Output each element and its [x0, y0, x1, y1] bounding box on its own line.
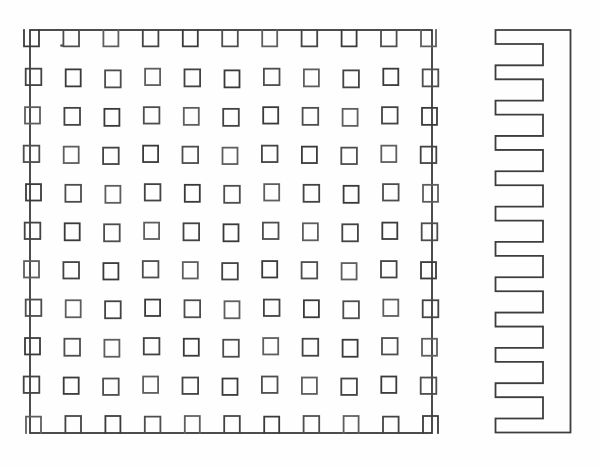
pin-outline — [383, 69, 398, 85]
pin-outline — [105, 186, 120, 203]
pin-outline — [144, 223, 159, 239]
pin-outline — [422, 223, 438, 240]
pin-outline — [304, 416, 320, 433]
pin-outline — [263, 338, 278, 354]
plan-outer-square — [30, 30, 432, 433]
pin-outline — [263, 223, 279, 239]
pin-outline — [423, 185, 438, 202]
pin-outline — [103, 30, 118, 46]
plan-view — [24, 30, 439, 433]
heatsink-technical-drawing — [0, 0, 600, 466]
pin-outline — [105, 416, 120, 433]
pin-outline — [184, 108, 199, 125]
pin-outline — [183, 378, 199, 394]
pin-outline — [222, 263, 238, 279]
pin-outline — [225, 301, 240, 318]
pin-outline — [223, 109, 239, 126]
pin-outline — [341, 148, 357, 164]
pin-outline — [341, 379, 357, 395]
pin-outline — [342, 263, 357, 279]
pin-outline — [302, 147, 317, 163]
pin-outline — [143, 261, 159, 277]
pin-outline — [105, 70, 121, 87]
pin-outline — [104, 224, 120, 241]
pin-outline — [381, 377, 396, 393]
pin-outline — [262, 377, 278, 393]
pin-outline — [184, 223, 200, 240]
pin-outline — [63, 30, 79, 46]
pin-outline — [303, 339, 319, 356]
pin-outline — [25, 107, 40, 123]
pin-outline — [66, 69, 81, 86]
pin-outline — [422, 339, 437, 356]
pin-outline — [26, 69, 42, 85]
pin-outline — [381, 30, 397, 46]
pin-outline — [103, 379, 119, 395]
pin-outline — [183, 147, 199, 163]
pin-outline — [342, 30, 357, 46]
pin-outline — [222, 30, 238, 46]
pin-outline — [383, 300, 398, 316]
pin-outline — [224, 416, 240, 433]
pin-outline — [64, 339, 80, 356]
pin-outline — [64, 378, 79, 394]
pin-outline — [423, 300, 439, 317]
pin-outline — [183, 262, 198, 278]
pin-outline — [262, 261, 277, 277]
pin-outline — [66, 300, 81, 317]
pin-outline — [26, 300, 42, 316]
pin-outline — [25, 338, 40, 354]
pin-outline — [383, 184, 399, 200]
pin-outline — [26, 184, 41, 200]
pin-outline — [381, 261, 397, 277]
pin-outline — [421, 30, 436, 46]
pin-outline — [185, 69, 201, 86]
pin-outline — [65, 416, 81, 433]
pin-outline — [25, 223, 41, 239]
pin-outline — [143, 377, 158, 393]
pin-outline — [145, 184, 161, 200]
pin-outline — [421, 147, 437, 163]
side-view — [496, 30, 571, 433]
pin-outline — [144, 338, 160, 354]
pin-outline — [224, 186, 240, 203]
pin-outline — [143, 146, 158, 162]
pin-outline — [65, 185, 81, 202]
pin-outline — [64, 108, 80, 125]
pin-outline — [344, 416, 359, 433]
pin-outline — [343, 109, 358, 126]
pin-outline — [303, 223, 318, 240]
pin-outline — [262, 30, 277, 46]
pin-outline — [185, 185, 200, 202]
pin-outline — [342, 224, 358, 241]
pin-outline — [304, 185, 320, 202]
pin-outline — [423, 69, 439, 86]
pin-outline — [304, 300, 319, 317]
pin-outline — [144, 107, 160, 123]
pin-outline — [343, 301, 359, 318]
pin-outline — [63, 262, 79, 278]
pin-outline — [105, 301, 121, 318]
pin-outline — [382, 223, 397, 239]
pin-outline — [26, 417, 41, 433]
pin-outline — [343, 70, 359, 87]
pin-outline — [344, 186, 359, 203]
pin-outline — [24, 261, 39, 277]
pin-outline — [422, 108, 437, 125]
pin-outline — [143, 30, 159, 46]
pin-outline — [263, 107, 278, 123]
pin-outline — [304, 69, 319, 86]
pin-outline — [383, 417, 399, 433]
pin-outline — [145, 417, 161, 433]
pin-outline — [103, 148, 119, 164]
fin-profile-outline — [496, 30, 571, 433]
pin-outline — [103, 263, 118, 279]
pin-outline — [381, 146, 396, 162]
pin-outline — [264, 300, 280, 316]
pin-outline — [65, 223, 80, 240]
pin-outline — [421, 262, 436, 278]
scan-speck — [60, 44, 63, 47]
pin-outline — [104, 109, 119, 126]
pin-outline — [24, 146, 40, 162]
pin-outline — [184, 339, 199, 356]
pin-outline — [145, 69, 160, 85]
pin-grid — [24, 30, 439, 433]
pin-outline — [145, 300, 160, 316]
pin-outline — [223, 379, 238, 395]
pin-outline — [225, 70, 240, 87]
pin-outline — [223, 340, 239, 357]
pin-outline — [264, 184, 279, 200]
pin-outline — [303, 108, 319, 125]
pin-outline — [262, 146, 278, 162]
pin-outline — [185, 416, 200, 433]
pin-outline — [104, 340, 119, 357]
pin-outline — [223, 148, 238, 164]
figure-page — [0, 0, 600, 466]
pin-outline — [264, 69, 280, 85]
pin-outline — [302, 378, 317, 394]
pin-outline — [224, 224, 239, 241]
pin-outline — [64, 147, 79, 163]
pin-outline — [421, 378, 437, 394]
pin-outline — [183, 30, 198, 46]
pin-outline — [24, 377, 40, 393]
pin-outline — [382, 107, 398, 123]
pin-outline — [302, 30, 318, 46]
pin-outline — [24, 30, 39, 46]
pin-outline — [185, 300, 201, 317]
pin-outline — [264, 417, 279, 433]
pin-outline — [302, 262, 318, 278]
pin-outline — [343, 340, 358, 357]
pin-outline — [423, 416, 438, 433]
pin-outline — [382, 338, 398, 354]
